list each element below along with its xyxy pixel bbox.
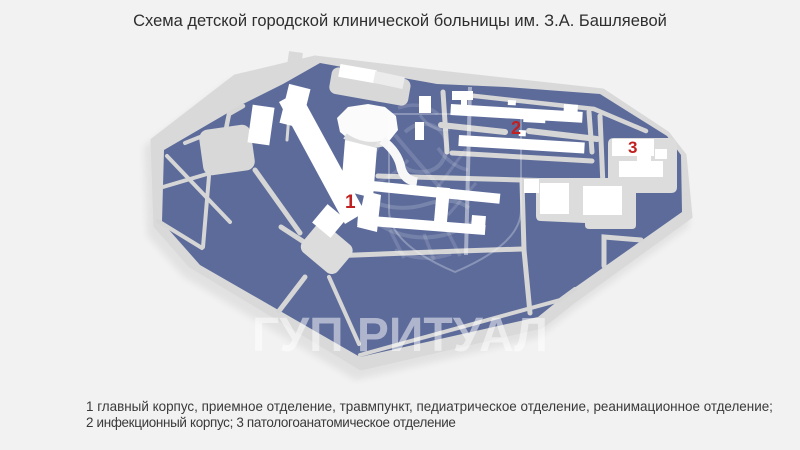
svg-text:ГУП РИТУАЛ: ГУП РИТУАЛ	[252, 309, 548, 362]
svg-text:2: 2	[511, 118, 521, 138]
svg-text:3: 3	[628, 138, 637, 157]
svg-text:1: 1	[345, 192, 356, 213]
